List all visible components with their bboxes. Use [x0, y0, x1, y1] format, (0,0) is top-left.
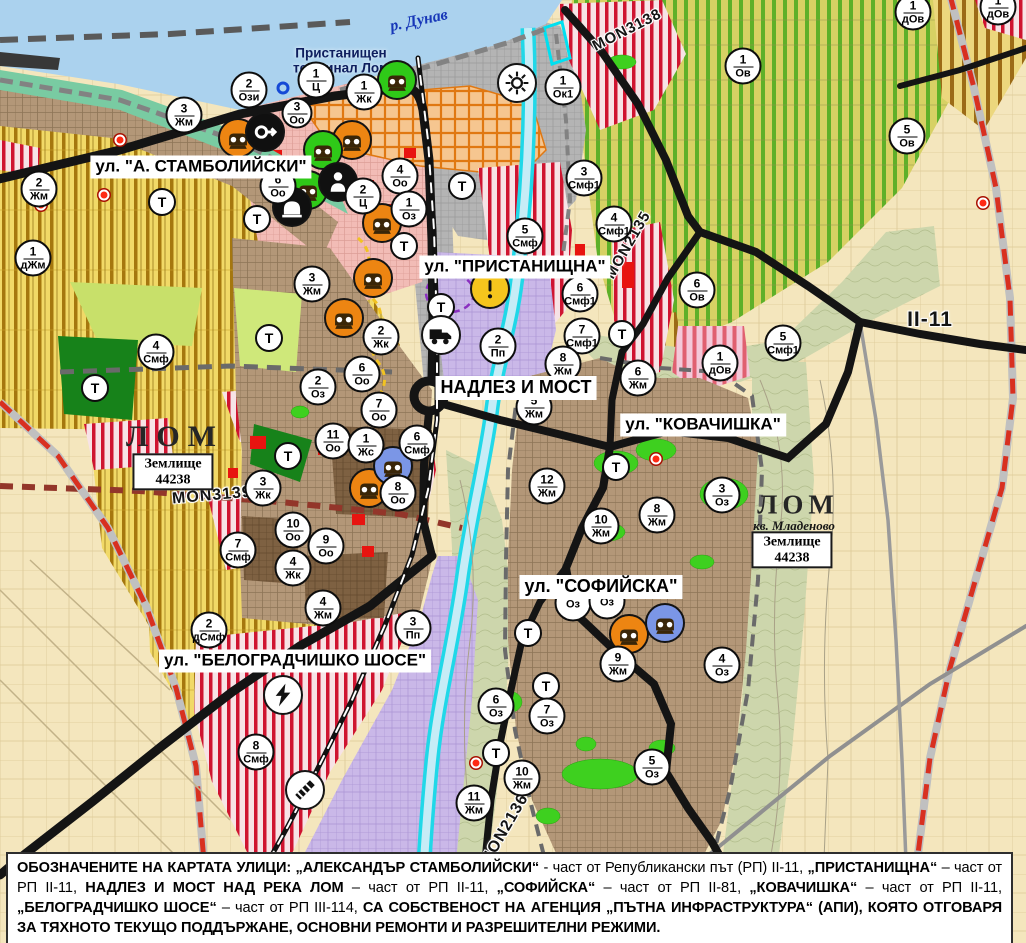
zone-code: дОв: [902, 14, 924, 25]
zone-number: 11: [468, 790, 481, 802]
zone-number: 11: [327, 428, 340, 440]
legend-segment: „БЕЛОГРАДЧИШКО ШОСЕ“: [17, 900, 222, 916]
zone-marker: 5 Смф: [507, 218, 544, 255]
zone-code: Оо: [392, 178, 407, 189]
zone-marker: 3 Жк: [245, 470, 282, 507]
zemlishte-word: Землище: [763, 534, 820, 550]
zone-marker: 1 Жк: [346, 74, 383, 111]
transformer-label: Т: [542, 678, 551, 694]
zone-code: Жс: [358, 447, 374, 458]
poi-icon: [292, 777, 318, 803]
zone-code: Смф: [404, 445, 430, 456]
zone-code: Оо: [285, 532, 300, 543]
legend-segment: „ПРИСТАНИЩНА“: [808, 860, 942, 876]
zone-marker: 10 Оо: [275, 512, 312, 549]
factory-icon-marker-green: [377, 60, 417, 100]
transformer-station-marker: Т: [602, 453, 630, 481]
zone-marker: 2 Пп: [480, 328, 517, 365]
road-code-ii-11: II-11: [907, 308, 953, 332]
place-label-text: ЛОМ: [757, 490, 839, 520]
zone-code: Смф1: [767, 345, 799, 356]
city-label-lom-east: ЛОМ: [757, 490, 839, 521]
zone-marker: 2 Жк: [363, 319, 400, 356]
zone-marker: 12 Жм: [529, 468, 566, 505]
transformer-label: Т: [524, 625, 533, 641]
transformer-label: Т: [437, 299, 446, 315]
zone-number: 5: [522, 223, 529, 235]
factory-icon-marker: [324, 298, 364, 338]
zone-marker: 5 Смф1: [765, 325, 802, 362]
zone-marker: 6 Оз: [478, 688, 515, 725]
zone-number: 2: [360, 183, 367, 195]
zone-code: Оз: [715, 497, 729, 508]
poi-icon: [270, 682, 296, 708]
street-label-text: ул. "КОВАЧИШКА": [625, 415, 781, 434]
transformer-label: Т: [158, 194, 167, 210]
street-label-text: ул. "БЕЛОГРАДЧИШКО ШОСЕ": [164, 651, 426, 670]
street-label-nadlez-i-most: НАДЛЕЗ И МОСТ: [436, 376, 597, 400]
zone-number: 4: [719, 652, 726, 664]
zone-number: 3: [309, 271, 316, 283]
zone-number: 9: [323, 533, 330, 545]
zone-code: Жм: [30, 191, 48, 202]
place-label-text: ЛОМ: [126, 420, 224, 453]
zone-marker: 9 Жм: [600, 646, 637, 683]
zone-marker: 6 Смф1: [562, 276, 599, 313]
zone-number: 7: [235, 537, 242, 549]
zone-marker: 2 дСмф: [191, 612, 228, 649]
legend-segment-text: „ПРИСТАНИЩНА“: [808, 860, 938, 876]
zone-marker: 10 Жм: [504, 760, 541, 797]
zone-number: 2: [246, 77, 253, 89]
zone-number: 2: [36, 176, 43, 188]
zone-number: 3: [181, 102, 188, 114]
map-legend-note: ОБОЗНАЧЕНИТЕ НА КАРТАТА УЛИЦИ: „АЛЕКСАНД…: [6, 852, 1013, 943]
poi-icon: [252, 119, 278, 145]
zone-number: 6: [694, 277, 701, 289]
zone-marker: 1 Оз: [391, 191, 428, 228]
zone-code: Жм: [592, 528, 610, 539]
zone-marker: 3 Жм: [166, 97, 203, 134]
zone-number: 6: [414, 430, 421, 442]
zone-marker: 2 Ц: [345, 178, 382, 215]
zone-number: 8: [395, 480, 402, 492]
transformer-label: Т: [400, 238, 409, 254]
truck-station-icon-marker: [421, 315, 461, 355]
zone-marker: 4 Смф1: [596, 206, 633, 243]
city-label-lom-west: ЛОМ: [126, 420, 224, 454]
legend-segment-text: – част от РП II-81,: [604, 880, 750, 896]
street-label-stamboliyski: ул. "А. СТАМБОЛИЙСКИ": [90, 156, 311, 179]
legend-segment: „КОВАЧИШКА“: [749, 880, 865, 896]
zone-code: Пп: [491, 348, 506, 359]
transformer-label: Т: [618, 326, 627, 342]
legend-segment: „СОФИЙСКА“: [497, 880, 604, 896]
zone-code: Смф: [225, 552, 251, 563]
zone-marker: 2 Жм: [21, 171, 58, 208]
zone-code: Оо: [371, 412, 386, 423]
poi-icon: [428, 322, 454, 348]
transformer-station-marker: Т: [482, 739, 510, 767]
transformer-label: Т: [612, 459, 621, 475]
zone-number: 1: [995, 0, 1002, 6]
zone-marker: 2 Ози: [231, 72, 268, 109]
zone-marker: 4 Оз: [704, 647, 741, 684]
poi-icon: [310, 137, 336, 163]
road-code-text: II-11: [907, 308, 953, 331]
zone-marker: 11 Оо: [315, 423, 352, 460]
poi-dot: [277, 82, 290, 95]
zone-code: Оо: [354, 376, 369, 387]
zone-number: 6: [359, 361, 366, 373]
zone-code: Оз: [715, 667, 729, 678]
transformer-label: Т: [91, 380, 100, 396]
poi-icon: [360, 265, 386, 291]
transformer-label: Т: [284, 448, 293, 464]
poi-dot: [115, 135, 126, 146]
zone-number: 1: [361, 79, 368, 91]
legend-segment-text: НАДЛЕЗ И МОСТ НАД РЕКА ЛОМ: [85, 880, 343, 896]
zone-code: Жк: [373, 339, 388, 350]
zone-code: Оо: [325, 443, 340, 454]
legend-segment-text: - част от Републикански път (РП) II-11,: [544, 860, 808, 876]
zone-marker: 1 Ц: [298, 62, 335, 99]
zone-marker: 3 Оо: [282, 98, 313, 129]
zone-code: Жм: [465, 805, 483, 816]
zone-number: 10: [515, 765, 528, 777]
transformer-station-marker: Т: [243, 205, 271, 233]
transformer-label: Т: [458, 178, 467, 194]
zone-code: Жм: [629, 380, 647, 391]
street-label-kovachishka: ул. "КОВАЧИШКА": [620, 414, 786, 437]
poi-icon: [652, 610, 678, 636]
zone-marker: 6 Оо: [344, 356, 381, 393]
factory-icon-marker: [353, 258, 393, 298]
railway-crossing-icon-marker: [285, 770, 325, 810]
zone-code: Жк: [356, 94, 371, 105]
poi-dot: [99, 190, 110, 201]
zone-marker: 4 Смф: [138, 334, 175, 371]
zone-marker: 10 Жм: [583, 508, 620, 545]
zemlishte-word: Землище: [144, 456, 201, 472]
legend-segment-text: – част от РП II-11,: [352, 880, 497, 896]
zone-code: Ок1: [553, 89, 573, 100]
zone-code: Пп: [406, 630, 421, 641]
zone-marker: 6 Ов: [679, 272, 716, 309]
zone-marker: 6 Жм: [620, 360, 657, 397]
zone-number: 5: [780, 330, 787, 342]
zone-code: Оз: [540, 718, 554, 729]
legend-segment: – част от РП II-81,: [604, 880, 750, 896]
legend-segment-text: ОБОЗНАЧЕНИТЕ НА КАРТАТА УЛИЦИ: „АЛЕКСАНД…: [17, 860, 539, 876]
poi-dot: [651, 454, 662, 465]
zone-marker: 1 Ок1: [545, 69, 582, 106]
map-sheet: ОБОЗНАЧЕНИТЕ НА КАРТАТА УЛИЦИ: „АЛЕКСАНД…: [0, 0, 1026, 943]
monument-icon-marker: [245, 112, 285, 152]
zone-code: Ози: [239, 92, 260, 103]
legend-segment: – част от РП II-11,: [866, 880, 1002, 896]
zone-number: 1: [717, 350, 724, 362]
zone-number: 2: [378, 324, 385, 336]
zone-code: Жм: [303, 286, 321, 297]
zone-number: 6: [493, 693, 500, 705]
zone-number: 4: [153, 339, 160, 351]
zone-code: Смф1: [598, 226, 630, 237]
zone-code: Оз: [489, 708, 503, 719]
zone-marker: 1 Ов: [725, 48, 762, 85]
zone-code: дСмф: [193, 632, 226, 643]
zone-number: 8: [654, 502, 661, 514]
street-label-text: ул. "А. СТАМБОЛИЙСКИ": [95, 157, 306, 176]
land-register-box: Землище 44238: [751, 531, 832, 568]
factory-icon-marker-blue: [645, 603, 685, 643]
transformer-station-marker: Т: [274, 442, 302, 470]
zemlishte-number: 44238: [144, 472, 201, 488]
poi-dot: [978, 198, 989, 209]
zone-code: Ов: [735, 68, 750, 79]
street-label-sofiyska: ул. "СОФИЙСКА": [519, 575, 682, 599]
zone-code: Жм: [525, 409, 543, 420]
zone-marker: 6 Смф: [399, 425, 436, 462]
zone-number: 2: [206, 617, 213, 629]
zone-number: 10: [594, 513, 607, 525]
zone-number: 3: [581, 165, 588, 177]
zone-marker: 7 Оз: [529, 698, 566, 735]
zone-marker: 4 Жк: [275, 550, 312, 587]
street-label-pristanishtna: ул. "ПРИСТАНИЩНА": [419, 256, 610, 279]
zone-number: 4: [611, 211, 618, 223]
zone-marker: 3 Оз: [704, 477, 741, 514]
zone-code: Смф: [512, 238, 538, 249]
legend-segment-text: „КОВАЧИШКА“: [749, 880, 857, 896]
zone-code: Оо: [270, 188, 285, 199]
zone-number: 3: [260, 475, 267, 487]
zone-marker: 4 Оо: [382, 158, 419, 195]
legend-segment: – част от РП III-114,: [222, 900, 363, 916]
zone-code: дЖм: [20, 260, 45, 271]
zone-number: 7: [544, 703, 551, 715]
zone-code: Жм: [609, 666, 627, 677]
zone-marker: 1 дОв: [702, 345, 739, 382]
zone-number: 1: [30, 245, 37, 257]
zemlishte-number: 44238: [763, 550, 820, 566]
street-label-belogradchishko: ул. "БЕЛОГРАДЧИШКО ШОСЕ": [159, 650, 431, 673]
legend-segment-text: – част от РП II-11,: [866, 880, 1002, 896]
zone-code: Оз: [566, 599, 580, 610]
zone-code: Оз: [311, 389, 325, 400]
zone-code: Жм: [314, 610, 332, 621]
legend-segment: - част от Републикански път (РП) II-11,: [544, 860, 808, 876]
zone-number: 4: [320, 595, 327, 607]
transformer-station-marker: Т: [148, 188, 176, 216]
zone-marker: 3 Пп: [395, 610, 432, 647]
poi-icon: [477, 276, 503, 302]
zone-number: 4: [397, 163, 404, 175]
legend-segment-text: „БЕЛОГРАДЧИШКО ШОСЕ“: [17, 900, 217, 916]
legend-segment: ОБОЗНАЧЕНИТЕ НА КАРТАТА УЛИЦИ: „АЛЕКСАНД…: [17, 860, 544, 876]
legend-segment: – част от РП II-11,: [352, 880, 497, 896]
transformer-label: Т: [492, 745, 501, 761]
zone-marker: 7 Оо: [361, 392, 398, 429]
zone-marker: 1 дЖм: [15, 240, 52, 277]
legend-segment: НАДЛЕЗ И МОСТ НАД РЕКА ЛОМ: [85, 880, 352, 896]
zone-number: 2: [495, 333, 502, 345]
zone-code: Ц: [312, 82, 320, 93]
zone-code: Смф1: [564, 296, 596, 307]
zone-code: дОв: [987, 9, 1009, 20]
sun-icon-marker: [497, 63, 537, 103]
zone-code: Оо: [318, 548, 333, 559]
poi-dot: [471, 758, 482, 769]
transformer-station-marker: Т: [532, 672, 560, 700]
zone-marker: 2 Оз: [300, 369, 337, 406]
zone-number: 8: [560, 351, 567, 363]
transformer-station-marker: Т: [448, 172, 476, 200]
transformer-station-marker: Т: [514, 619, 542, 647]
zone-code: Ов: [899, 138, 914, 149]
zone-number: 1: [406, 196, 413, 208]
zone-number: 1: [560, 74, 567, 86]
zone-number: 3: [410, 615, 417, 627]
zone-code: Ов: [689, 292, 704, 303]
zone-number: 1: [363, 432, 370, 444]
zone-number: 9: [615, 651, 622, 663]
zone-number: 3: [294, 100, 301, 112]
legend-segment-text: „СОФИЙСКА“: [497, 880, 596, 896]
zone-marker: 8 Оо: [380, 475, 417, 512]
zone-code: Жк: [255, 490, 270, 501]
zone-marker: 9 Оо: [308, 528, 345, 565]
zone-code: Жк: [285, 570, 300, 581]
zone-number: 7: [376, 397, 383, 409]
zone-code: Оо: [390, 495, 405, 506]
zone-marker: 5 Ов: [889, 118, 926, 155]
zone-code: Смф: [143, 354, 169, 365]
zone-number: 2: [315, 374, 322, 386]
zone-marker: 3 Жм: [294, 266, 331, 303]
zone-code: Жм: [648, 517, 666, 528]
zone-marker: 3 Смф1: [566, 160, 603, 197]
zone-marker: 5 Оз: [634, 749, 671, 786]
zone-marker: 8 Смф: [238, 734, 275, 771]
zone-number: 4: [290, 555, 297, 567]
transformer-station-marker: Т: [255, 324, 283, 352]
zone-number: 10: [286, 517, 299, 529]
zone-number: 1: [910, 0, 917, 11]
street-label-text: ул. "ПРИСТАНИЩНА": [424, 257, 605, 276]
zone-code: Ц: [359, 198, 367, 209]
transformer-label: Т: [253, 211, 262, 227]
zone-number: 6: [635, 365, 642, 377]
zone-number: 7: [579, 323, 586, 335]
poi-icon: [504, 70, 530, 96]
street-label-text: ул. "СОФИЙСКА": [524, 576, 677, 596]
zone-code: Оз: [645, 769, 659, 780]
zone-code: Жм: [538, 488, 556, 499]
zone-marker: 11 Жм: [456, 785, 493, 822]
zone-code: Оо: [289, 115, 304, 126]
zone-number: 12: [540, 473, 553, 485]
zone-number: 5: [904, 123, 911, 135]
legend-segment-text: – част от РП III-114,: [222, 900, 363, 916]
land-register-box: Землище 44238: [132, 453, 213, 490]
zone-number: 1: [313, 67, 320, 79]
street-label-text: НАДЛЕЗ И МОСТ: [441, 377, 592, 397]
zone-marker: 4 Жм: [305, 590, 342, 627]
zone-number: 5: [649, 754, 656, 766]
zone-number: 8: [253, 739, 260, 751]
poi-icon: [331, 305, 357, 331]
zone-code: Смф: [243, 754, 269, 765]
zone-code: Оз: [402, 211, 416, 222]
zone-code: Жм: [513, 780, 531, 791]
electric-substation-icon-marker: [263, 675, 303, 715]
zone-marker: 8 Жм: [639, 497, 676, 534]
zone-number: 3: [719, 482, 726, 494]
zone-code: Смф1: [568, 180, 600, 191]
poi-icon: [384, 67, 410, 93]
poi-icon: [616, 621, 642, 647]
zone-number: 6: [577, 281, 584, 293]
zone-code: дОв: [709, 365, 731, 376]
zone-code: Жм: [175, 117, 193, 128]
transformer-station-marker: Т: [81, 374, 109, 402]
zone-marker: 7 Смф: [220, 532, 257, 569]
transformer-station-marker: Т: [608, 320, 636, 348]
transformer-label: Т: [265, 330, 274, 346]
zone-number: 1: [740, 53, 747, 65]
zone-marker: 1 Жс: [348, 427, 385, 464]
